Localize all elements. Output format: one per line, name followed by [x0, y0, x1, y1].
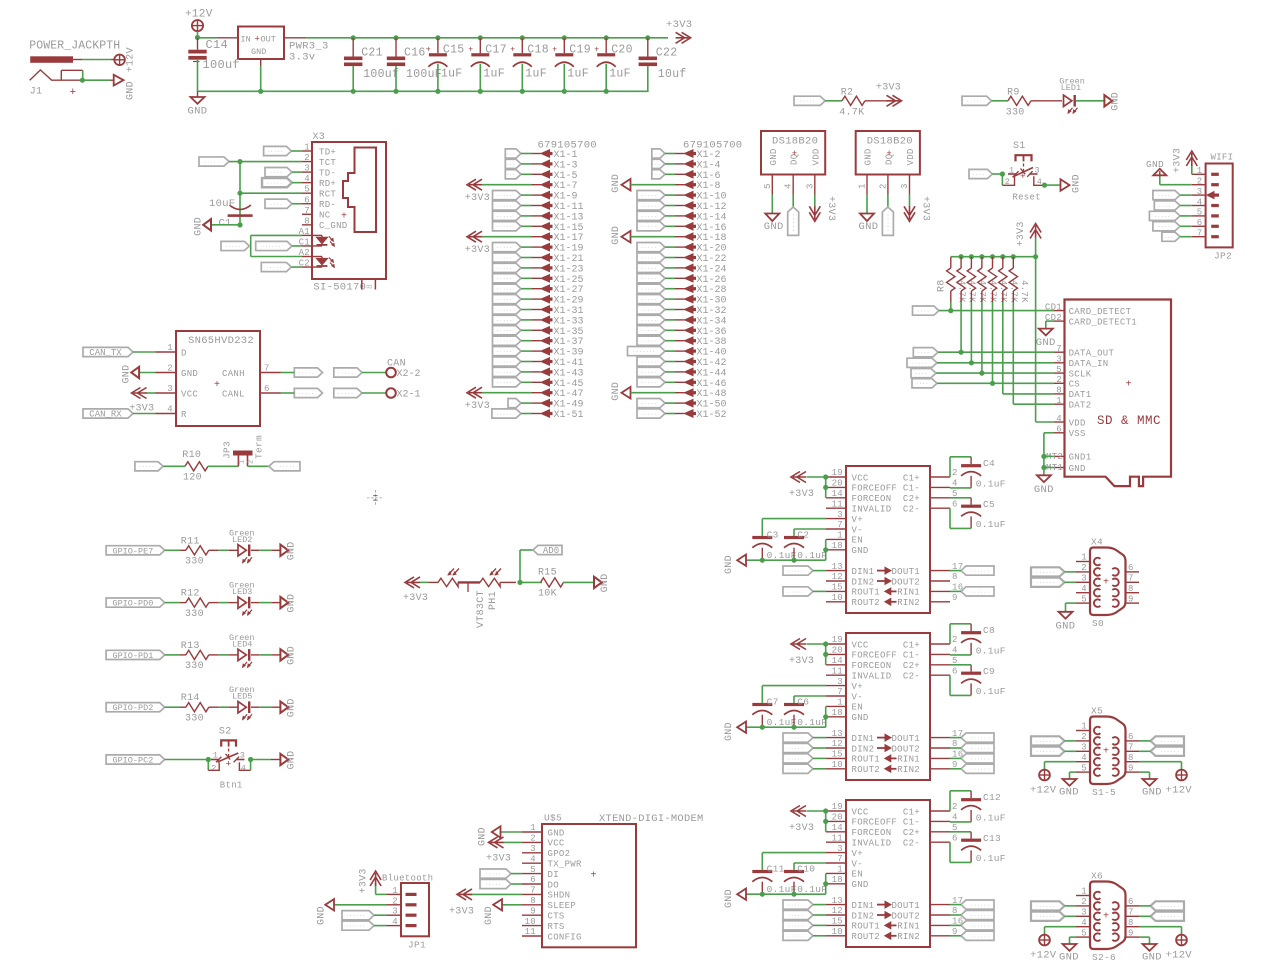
svg-text:····: ····	[269, 201, 282, 208]
svg-text:····: ····	[917, 308, 930, 315]
svg-text:·····: ·····	[496, 275, 513, 282]
svg-text:1: 1	[1056, 396, 1062, 406]
svg-text:C20: C20	[611, 44, 633, 57]
svg-text:·····: ·····	[496, 379, 513, 386]
svg-text:RD-: RD-	[319, 200, 336, 210]
svg-text:VDD: VDD	[1069, 418, 1086, 428]
svg-text:C22: C22	[656, 47, 678, 60]
svg-text:····: ····	[1158, 202, 1171, 209]
svg-text:C1+: C1+	[903, 473, 920, 483]
svg-text:DOUT1: DOUT1	[891, 567, 920, 577]
svg-text:C14: C14	[206, 38, 229, 52]
svg-text:X1-17: X1-17	[554, 233, 584, 244]
svg-text:GND: GND	[1034, 484, 1054, 496]
svg-text:RIN1: RIN1	[897, 922, 920, 932]
svg-text:5: 5	[1081, 763, 1087, 773]
svg-text:13: 13	[832, 896, 843, 906]
svg-text:8: 8	[1128, 753, 1134, 763]
svg-text:X2-1: X2-1	[397, 390, 421, 401]
svg-text:C16: C16	[404, 47, 426, 60]
svg-text:INVALID: INVALID	[852, 505, 892, 515]
svg-text:DATA_IN: DATA_IN	[1069, 359, 1109, 369]
svg-text:GND: GND	[286, 646, 297, 665]
svg-text:EN: EN	[852, 703, 863, 713]
svg-text:4: 4	[167, 405, 173, 415]
svg-text:2: 2	[304, 153, 310, 163]
svg-text:2: 2	[1197, 177, 1203, 187]
svg-text:X1-1: X1-1	[554, 150, 578, 161]
svg-text:·····: ·····	[496, 265, 513, 272]
svg-text:X6: X6	[1091, 871, 1103, 882]
svg-text:DIN1: DIN1	[852, 734, 875, 744]
svg-text:4: 4	[952, 646, 958, 656]
svg-text:9: 9	[1128, 763, 1134, 773]
svg-text:FORCEON: FORCEON	[852, 494, 892, 504]
svg-text:VDD: VDD	[811, 148, 821, 165]
svg-text:FORCEOFF: FORCEOFF	[852, 818, 898, 828]
svg-text:VCC: VCC	[852, 640, 869, 650]
svg-text:RIN1: RIN1	[897, 755, 920, 765]
svg-text:RD+: RD+	[319, 179, 336, 189]
svg-text:GND: GND	[251, 47, 266, 57]
svg-text:+12V: +12V	[1030, 785, 1057, 797]
svg-text:GND: GND	[1072, 174, 1083, 193]
svg-text:JP1: JP1	[408, 940, 426, 951]
svg-text:+3V3: +3V3	[403, 593, 428, 604]
svg-text:DS18B20: DS18B20	[772, 135, 818, 147]
svg-text:5: 5	[1081, 928, 1087, 938]
svg-text:·····: ·····	[496, 338, 513, 345]
svg-text:7: 7	[837, 854, 843, 864]
svg-text:19: 19	[832, 802, 843, 812]
svg-text:S1: S1	[1013, 141, 1026, 152]
svg-text:···: ···	[651, 161, 661, 168]
svg-text:·····: ·····	[298, 390, 315, 397]
svg-text:RIN1: RIN1	[897, 588, 920, 598]
svg-text:+12V: +12V	[126, 47, 137, 72]
svg-text:·····: ·····	[640, 286, 657, 293]
svg-text:1: 1	[858, 183, 868, 189]
svg-text:1: 1	[1081, 887, 1087, 897]
svg-text:2: 2	[530, 834, 536, 844]
svg-text:GPIO-PD0: GPIO-PD0	[112, 599, 153, 609]
svg-text:······: ······	[1035, 903, 1055, 910]
svg-text:3: 3	[1056, 355, 1062, 365]
svg-text:GND: GND	[286, 541, 297, 560]
svg-text:8: 8	[304, 216, 310, 226]
svg-text:19: 19	[832, 468, 843, 478]
svg-text:······: ······	[261, 243, 281, 250]
svg-text:3: 3	[392, 907, 398, 917]
svg-text:+12V: +12V	[1166, 785, 1193, 797]
svg-text:DIN1: DIN1	[852, 567, 875, 577]
svg-text:C6: C6	[797, 696, 809, 707]
svg-text:GND1: GND1	[1069, 453, 1092, 463]
svg-text:+: +	[214, 380, 220, 391]
svg-text:DOUT2: DOUT2	[891, 577, 920, 587]
svg-text:GND: GND	[764, 221, 784, 233]
svg-text:10: 10	[832, 927, 843, 937]
svg-text:3: 3	[805, 183, 815, 189]
svg-text:·····: ·····	[496, 202, 513, 209]
svg-text:RCT: RCT	[319, 190, 336, 200]
svg-text:·····: ·····	[885, 213, 892, 233]
svg-text:9: 9	[530, 906, 536, 916]
svg-text:8: 8	[1128, 584, 1134, 594]
svg-text:JP2: JP2	[1214, 250, 1232, 261]
svg-text:1uF: 1uF	[609, 68, 631, 81]
svg-text:C2-: C2-	[903, 839, 920, 849]
svg-text:·····: ·····	[787, 755, 804, 762]
svg-text:LED2: LED2	[232, 535, 252, 545]
svg-text:GND: GND	[1142, 787, 1162, 799]
svg-text:·····: ·····	[640, 369, 657, 376]
svg-text:X4: X4	[1091, 537, 1103, 548]
svg-text:7: 7	[1128, 574, 1134, 584]
svg-text:GPIO-PD2: GPIO-PD2	[112, 703, 153, 713]
svg-text:·····: ·····	[496, 254, 513, 261]
svg-text:X1-9: X1-9	[554, 192, 578, 203]
svg-text:1: 1	[530, 823, 536, 833]
svg-text:CAN_RX: CAN_RX	[89, 410, 122, 420]
svg-text:330: 330	[185, 557, 204, 568]
svg-text:2: 2	[952, 468, 958, 478]
svg-text:DIN1: DIN1	[852, 901, 875, 911]
svg-text:······: ······	[970, 922, 990, 929]
svg-text:X1-18: X1-18	[697, 233, 727, 244]
svg-text:C10: C10	[797, 863, 815, 874]
svg-text:4.7K: 4.7K	[1019, 280, 1029, 303]
svg-text:1: 1	[304, 143, 310, 153]
svg-text:X1-6: X1-6	[697, 171, 721, 182]
svg-text:X1-23: X1-23	[554, 264, 584, 275]
svg-text:GND: GND	[126, 81, 137, 100]
svg-text:120: 120	[183, 473, 202, 484]
svg-text:1: 1	[239, 459, 247, 464]
svg-text:·····: ·····	[787, 902, 804, 909]
svg-text:U$5: U$5	[544, 813, 562, 824]
svg-text:·····: ·····	[496, 213, 513, 220]
svg-text:Bluetooth: Bluetooth	[382, 874, 433, 884]
svg-text:GND: GND	[1110, 92, 1121, 111]
svg-text:X5: X5	[1091, 706, 1103, 717]
svg-text:8: 8	[952, 572, 958, 582]
svg-text:·····: ·····	[496, 296, 513, 303]
svg-text:···: ···	[507, 400, 517, 407]
svg-text:2: 2	[878, 183, 888, 189]
svg-text:X1-28: X1-28	[697, 285, 727, 296]
svg-text:X1-3: X1-3	[554, 160, 578, 171]
svg-text:GND: GND	[1059, 787, 1079, 799]
svg-text:······: ······	[970, 745, 990, 752]
svg-text:FORCEOFF: FORCEOFF	[852, 484, 898, 494]
svg-text:······: ······	[346, 923, 366, 930]
svg-text:VDD: VDD	[906, 148, 916, 165]
svg-text:C21: C21	[361, 47, 383, 60]
svg-text:+3V3: +3V3	[1172, 148, 1183, 173]
svg-text:20: 20	[832, 479, 843, 489]
svg-text:······: ······	[1035, 579, 1055, 586]
svg-text:10uf: 10uf	[658, 68, 687, 81]
svg-text:R9: R9	[1007, 87, 1020, 98]
svg-text:5: 5	[1197, 208, 1203, 218]
svg-text:JP3: JP3	[222, 441, 233, 459]
svg-text:2: 2	[952, 635, 958, 645]
svg-text:·····: ·····	[640, 265, 657, 272]
svg-text:4: 4	[1081, 918, 1087, 928]
svg-text:·····: ·····	[266, 264, 283, 271]
svg-text:SHDN: SHDN	[548, 891, 571, 901]
svg-text:GND: GND	[122, 365, 133, 384]
svg-text:SLEEP: SLEEP	[548, 901, 577, 911]
svg-text:0.1uF: 0.1uF	[976, 813, 1006, 824]
svg-text:18: 18	[832, 875, 843, 885]
svg-text:C8: C8	[983, 625, 995, 636]
svg-text:GND: GND	[286, 698, 297, 717]
svg-text:POWER_JACKPTH: POWER_JACKPTH	[29, 39, 120, 52]
svg-text:······: ······	[346, 912, 366, 919]
svg-text:·····: ·····	[266, 180, 283, 187]
svg-text:3: 3	[1035, 165, 1040, 175]
svg-text:C1: C1	[219, 218, 232, 230]
svg-text:3: 3	[530, 844, 536, 854]
svg-text:10: 10	[832, 593, 843, 603]
svg-text:+3V3: +3V3	[825, 196, 836, 221]
svg-text:·····: ·····	[298, 369, 315, 376]
svg-text:0.1uF: 0.1uF	[976, 686, 1006, 697]
svg-text:+12V: +12V	[1030, 950, 1057, 962]
svg-text:·····: ·····	[787, 568, 804, 575]
svg-text:GND: GND	[859, 221, 879, 233]
svg-text:X1-34: X1-34	[697, 316, 727, 327]
svg-text:3: 3	[167, 384, 173, 394]
svg-text:·····: ·····	[496, 410, 513, 417]
svg-text:4: 4	[304, 174, 310, 184]
svg-text:·····: ·····	[224, 243, 241, 250]
svg-text:2: 2	[1081, 563, 1087, 573]
svg-text:EN: EN	[852, 536, 863, 546]
svg-text:18: 18	[832, 708, 843, 718]
svg-text:VCC: VCC	[852, 473, 869, 483]
svg-text:·····: ·····	[267, 148, 284, 155]
svg-text:+3V3: +3V3	[789, 489, 814, 500]
svg-text:C1-: C1-	[903, 651, 920, 661]
svg-text:·····: ·····	[1154, 213, 1171, 220]
svg-text:GND: GND	[1056, 620, 1076, 632]
svg-text:······: ······	[970, 588, 990, 595]
svg-text:X1-5: X1-5	[554, 171, 578, 182]
svg-text:SD & MMC: SD & MMC	[1097, 414, 1161, 428]
svg-text:+: +	[594, 46, 599, 55]
svg-text:+3V3: +3V3	[465, 193, 490, 204]
svg-text:C2-: C2-	[903, 672, 920, 682]
svg-text:C_GND: C_GND	[319, 221, 348, 231]
svg-text:C1-: C1-	[903, 818, 920, 828]
svg-text:X1-43: X1-43	[554, 368, 584, 379]
svg-text:+: +	[70, 87, 77, 99]
svg-text:6: 6	[1128, 897, 1134, 907]
svg-text:···: ···	[1163, 234, 1173, 241]
svg-text:·····: ·····	[640, 254, 657, 261]
svg-text:RIN2: RIN2	[897, 932, 920, 942]
svg-text:100uF: 100uF	[406, 68, 442, 81]
svg-text:DAT1: DAT1	[1069, 390, 1092, 400]
svg-text:X1-14: X1-14	[697, 212, 727, 223]
svg-text:CTS: CTS	[548, 912, 565, 922]
svg-text:······: ······	[1160, 913, 1180, 920]
svg-text:+: +	[510, 46, 515, 55]
svg-text:6: 6	[952, 666, 958, 676]
svg-text:10: 10	[832, 760, 843, 770]
svg-text:·····: ·····	[640, 379, 657, 386]
svg-text:5: 5	[763, 183, 773, 189]
svg-text:GND: GND	[194, 217, 205, 236]
svg-text:J1: J1	[30, 87, 43, 98]
svg-text:5: 5	[1081, 594, 1087, 604]
svg-text:11: 11	[832, 499, 843, 509]
svg-text:2: 2	[1081, 897, 1087, 907]
svg-text:GND: GND	[188, 106, 208, 118]
svg-text:GPIO-PE7: GPIO-PE7	[112, 546, 153, 556]
svg-text:X1-10: X1-10	[697, 192, 727, 203]
svg-text:CARD_DETECT: CARD_DETECT	[1069, 307, 1132, 317]
svg-text:15: 15	[832, 750, 843, 760]
svg-text:X1-22: X1-22	[697, 254, 727, 265]
svg-text:FORCEOFF: FORCEOFF	[852, 651, 898, 661]
svg-text:·····: ·····	[640, 306, 657, 313]
svg-text:ROUT2: ROUT2	[852, 765, 881, 775]
svg-text:······: ······	[970, 766, 990, 773]
svg-text:FORCEON: FORCEON	[852, 828, 892, 838]
svg-text:+: +	[792, 149, 798, 159]
svg-text:V+: V+	[852, 849, 863, 859]
svg-text:CONFIG: CONFIG	[548, 932, 582, 942]
svg-text:X1-4: X1-4	[697, 160, 721, 171]
svg-text:11: 11	[525, 927, 536, 937]
svg-text:C12: C12	[983, 792, 1001, 803]
svg-text:INVALID: INVALID	[852, 672, 892, 682]
svg-text:R8: R8	[937, 279, 948, 292]
svg-text:X1-32: X1-32	[697, 306, 727, 317]
svg-text:1: 1	[167, 343, 173, 353]
svg-text:TCT: TCT	[319, 158, 336, 168]
svg-text:NC: NC	[319, 211, 331, 221]
svg-text:C5: C5	[983, 499, 995, 510]
svg-text:·····: ·····	[496, 327, 513, 334]
svg-text:X1-35: X1-35	[554, 327, 584, 338]
svg-text:+: +	[591, 871, 597, 882]
svg-text:3: 3	[837, 510, 843, 520]
svg-text:6: 6	[952, 833, 958, 843]
svg-text:GND: GND	[1059, 952, 1079, 964]
svg-text:+: +	[1103, 912, 1109, 923]
svg-text:······: ······	[970, 902, 990, 909]
svg-text:FORCEON: FORCEON	[852, 661, 892, 671]
svg-text:·····: ·····	[640, 213, 657, 220]
svg-text:5: 5	[304, 185, 310, 195]
svg-text:·····: ·····	[640, 202, 657, 209]
svg-text:12: 12	[832, 739, 843, 749]
svg-text:X1-20: X1-20	[697, 244, 727, 255]
svg-text:ROUT2: ROUT2	[852, 932, 881, 942]
svg-text:·····: ·····	[966, 98, 983, 105]
svg-text:330: 330	[185, 714, 204, 725]
svg-text:····: ····	[1157, 192, 1170, 199]
svg-text:·····: ·····	[640, 275, 657, 282]
svg-text:R11: R11	[181, 536, 200, 547]
svg-text:GPO2: GPO2	[548, 849, 571, 859]
svg-text:1: 1	[213, 751, 218, 761]
svg-text:Term: Term	[254, 435, 265, 459]
svg-text:X1-24: X1-24	[697, 264, 727, 275]
svg-text:·····: ·····	[640, 358, 657, 365]
svg-text:0.1uF: 0.1uF	[976, 646, 1006, 657]
svg-text:GND: GND	[864, 148, 874, 165]
svg-text:······: ······	[1035, 569, 1055, 576]
svg-text:2: 2	[952, 802, 958, 812]
svg-text:3: 3	[900, 183, 910, 189]
svg-text:4: 4	[241, 764, 246, 774]
svg-text:Btn1: Btn1	[220, 781, 243, 791]
svg-text:18: 18	[832, 541, 843, 551]
svg-text:7: 7	[837, 687, 843, 697]
svg-text:VCC: VCC	[852, 807, 869, 817]
svg-text:LED3: LED3	[232, 587, 252, 597]
svg-text:·····: ·····	[138, 463, 155, 470]
svg-text:······: ······	[1035, 748, 1055, 755]
svg-text:······: ······	[1035, 738, 1055, 745]
svg-text:4: 4	[1056, 414, 1062, 424]
svg-text:+: +	[552, 46, 557, 55]
svg-text:R13: R13	[181, 641, 200, 652]
svg-text:8: 8	[1128, 918, 1134, 928]
svg-text:······: ······	[970, 933, 990, 940]
svg-text:GND: GND	[317, 906, 328, 925]
svg-text:ROUT1: ROUT1	[852, 755, 881, 765]
svg-text:GND: GND	[611, 382, 622, 401]
svg-text:C1+: C1+	[903, 807, 920, 817]
svg-text:·······: ·······	[632, 348, 655, 355]
svg-text:·····: ·····	[640, 192, 657, 199]
svg-text:V+: V+	[852, 515, 863, 525]
svg-text:IN: IN	[241, 35, 251, 45]
svg-text:C3: C3	[767, 529, 779, 540]
svg-text:·····: ·····	[485, 871, 502, 878]
svg-text:C4: C4	[983, 458, 995, 469]
svg-text:R12: R12	[181, 589, 200, 600]
svg-text:RIN2: RIN2	[897, 598, 920, 608]
svg-text:C19: C19	[569, 44, 591, 57]
svg-text:·····: ·····	[496, 369, 513, 376]
svg-text:······: ······	[970, 755, 990, 762]
svg-text:0.1uF: 0.1uF	[976, 479, 1006, 490]
svg-text:CANL: CANL	[222, 390, 245, 400]
svg-text:X1-26: X1-26	[697, 275, 727, 286]
svg-text:GND: GND	[478, 827, 489, 846]
svg-text:1: 1	[1081, 722, 1087, 732]
svg-text:CAN_TX: CAN_TX	[89, 348, 122, 358]
svg-text:X1-45: X1-45	[554, 379, 584, 390]
svg-text:V-: V-	[852, 692, 863, 702]
svg-text:GPIO-PD1: GPIO-PD1	[112, 651, 153, 661]
svg-text:·····: ·····	[279, 463, 296, 470]
svg-text:·····: ·····	[787, 588, 804, 595]
svg-text:1: 1	[837, 865, 843, 875]
svg-text:3: 3	[240, 751, 245, 761]
svg-text:3: 3	[837, 844, 843, 854]
svg-text:2: 2	[211, 764, 216, 774]
svg-text:X1-38: X1-38	[697, 337, 727, 348]
